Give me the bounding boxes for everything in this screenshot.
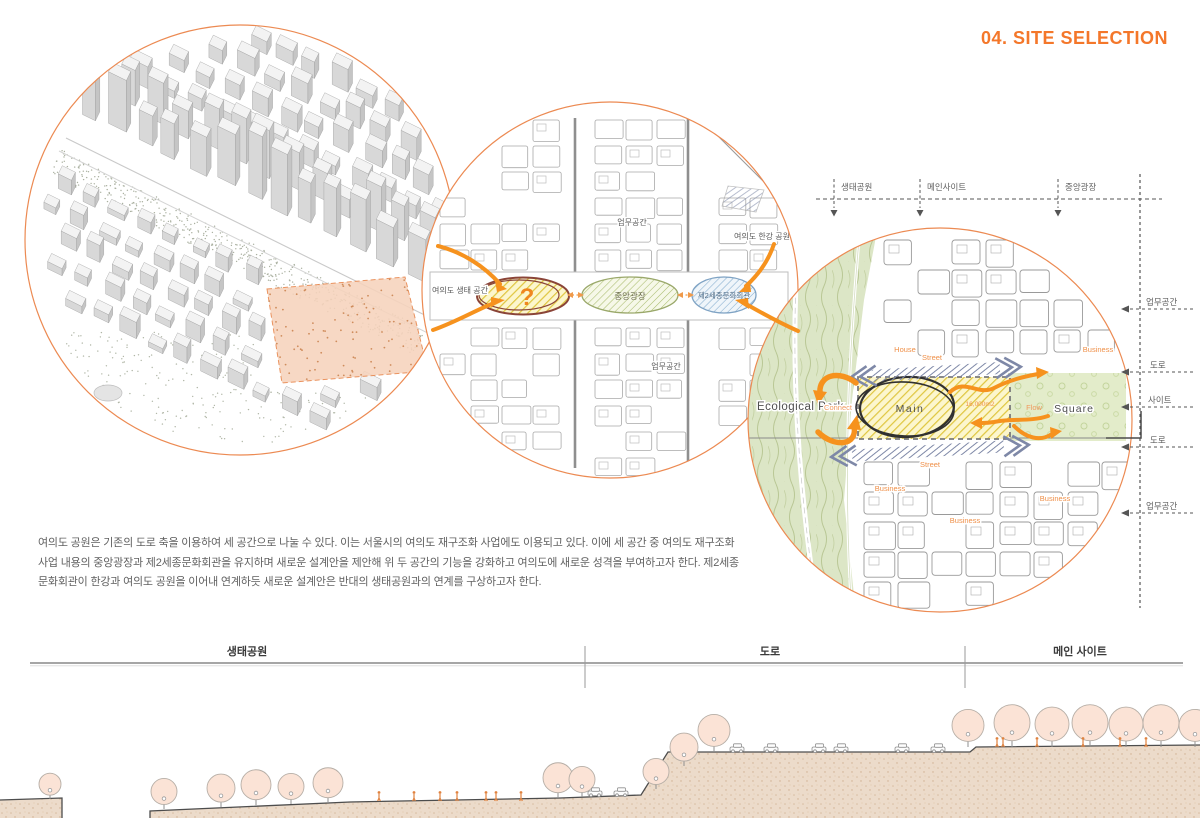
right-axis-label-1: 도로 bbox=[1150, 360, 1166, 370]
scene-svg: 업무공간 여의도 한강 공원 여의도 생태 공간 업무공간 ? 중앙광장 제2세… bbox=[0, 0, 1200, 818]
section-label-road: 도로 bbox=[760, 645, 780, 658]
top-axis-tick-main: 메인사이트 bbox=[917, 179, 967, 217]
business-label-left: Business bbox=[875, 484, 906, 493]
right-axis-row-0: 업무공간 bbox=[1121, 297, 1194, 313]
top-axis-tick-plaza: 중앙광장 bbox=[1055, 179, 1097, 217]
flow-label: Flow bbox=[1026, 403, 1042, 412]
top-axis-tick-eco: 생태공원 bbox=[831, 179, 873, 217]
question-mark-label: ? bbox=[520, 284, 535, 311]
top-axis-label-1: 메인사이트 bbox=[927, 182, 966, 192]
section-label-eco: 생태공원 bbox=[227, 644, 267, 658]
connect-label: Connect bbox=[824, 403, 853, 412]
section-drawing: 생태공원 도로 메인 사이트 bbox=[0, 644, 1200, 818]
site-selection-board: 04. SITE SELECTION 여의도 공원은 기존의 도로 축을 이용하… bbox=[0, 0, 1200, 818]
business-label-top: Business bbox=[1083, 345, 1114, 354]
plan-hangang-label: 여의도 한강 공원 bbox=[734, 231, 790, 241]
axon-circle bbox=[25, 25, 455, 455]
section-ground bbox=[0, 745, 1200, 818]
main-label: Main bbox=[896, 403, 925, 415]
axon-pond bbox=[94, 385, 122, 401]
site-highlight-overlay bbox=[267, 277, 428, 383]
right-axis-row-4: 업무공간 bbox=[1121, 501, 1194, 517]
right-axis-label-3: 도로 bbox=[1150, 435, 1166, 445]
section-label-main: 메인 사이트 bbox=[1053, 644, 1107, 658]
central-plaza-label: 중앙광장 bbox=[614, 291, 645, 301]
right-axis-rows: 업무공간 도로 사이트 도로 bbox=[1121, 297, 1194, 517]
right-axis-label-2: 사이트 bbox=[1148, 395, 1172, 405]
square-label: Square bbox=[1054, 403, 1094, 415]
right-axis-label-4: 업무공간 bbox=[1146, 501, 1177, 511]
business-label-right: Business bbox=[1040, 494, 1071, 503]
street-bottom-label: Street bbox=[920, 460, 941, 469]
street-top-label: Street bbox=[922, 353, 943, 362]
top-axis-label-2: 중앙광장 bbox=[1065, 182, 1096, 192]
plan-top-label: 업무공간 bbox=[617, 217, 647, 227]
right-axis-row-1: 도로 bbox=[1121, 360, 1194, 376]
area-label: 16,000m2 bbox=[966, 401, 995, 408]
plan-left-label: 여의도 생태 공간 bbox=[432, 285, 489, 295]
business-label-mid: Business bbox=[950, 516, 981, 525]
right-axis-label-0: 업무공간 bbox=[1146, 297, 1177, 307]
top-axis-label-0: 생태공원 bbox=[841, 182, 872, 192]
house-label: House bbox=[894, 345, 916, 354]
plan-bottom-label: 업무공간 bbox=[651, 361, 681, 371]
